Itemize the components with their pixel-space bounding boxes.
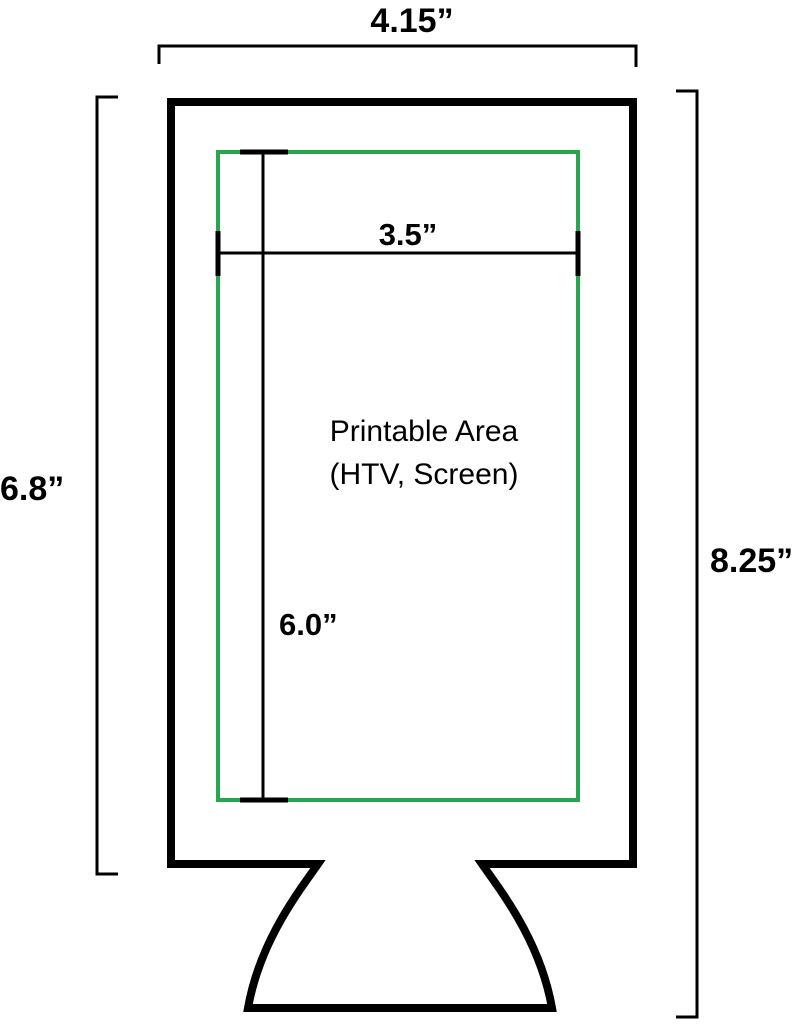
left-dimension-bracket: [97, 97, 118, 874]
printable-height-label: 6.0”: [279, 607, 338, 642]
printable-area-caption-line1: Printable Area: [330, 415, 519, 448]
body-height-label: 6.8”: [0, 470, 64, 508]
overall-height-label: 8.25”: [710, 542, 793, 580]
printable-area-caption-line2: (HTV, Screen): [330, 458, 519, 491]
diagram-canvas: 4.15” 6.8” 8.25” 3.5” 6.0” Printable Are…: [0, 0, 801, 1024]
koozie-template-diagram: 4.15” 6.8” 8.25” 3.5” 6.0” Printable Are…: [0, 0, 801, 1024]
overall-width-label: 4.15”: [370, 2, 453, 40]
right-dimension-bracket: [676, 91, 697, 1017]
printable-width-label: 3.5”: [379, 217, 438, 252]
top-dimension-bracket: [159, 46, 636, 67]
